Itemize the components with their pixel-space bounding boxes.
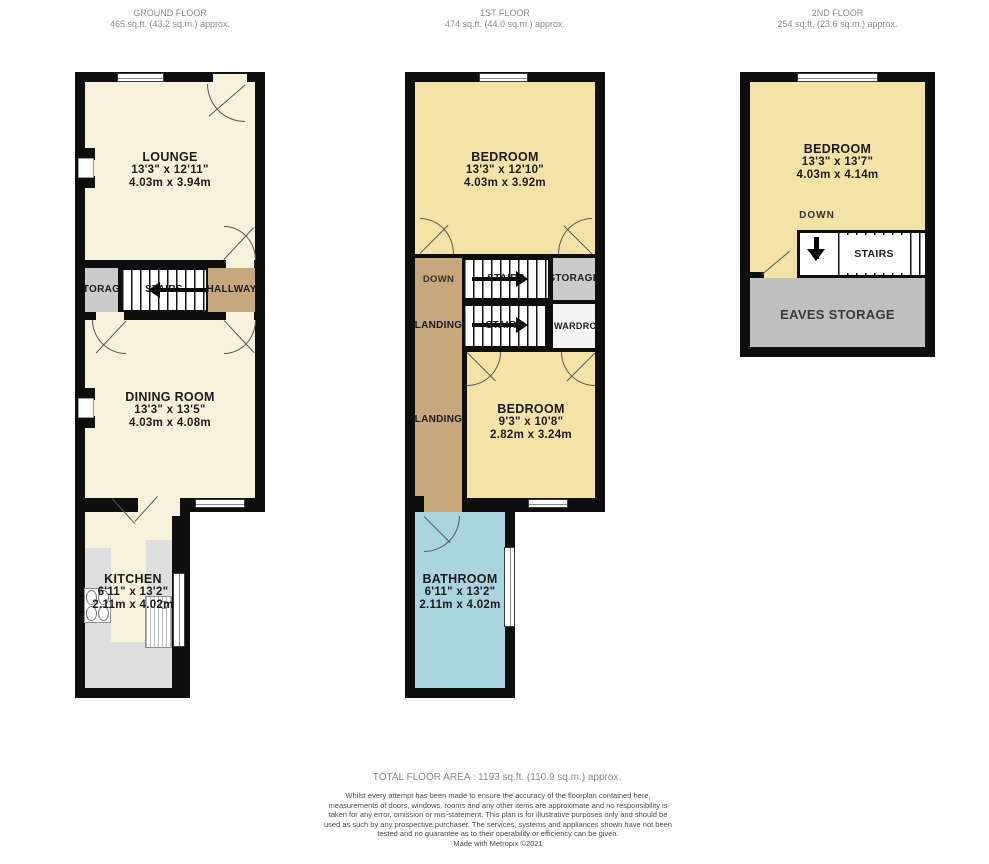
room-dims-imperial: 6'11" x 13'2" (59, 586, 207, 599)
wardrobe-label: WARDROBE (553, 304, 596, 348)
bathroom-label: BATHROOM 6'11" x 13'2" 2.11m x 4.02m (408, 572, 512, 612)
room-dims-metric: 2.82m x 3.24m (467, 429, 595, 442)
room-dims-imperial: 13'3" x 12'10" (415, 164, 595, 177)
bedroom1-label: BEDROOM 13'3" x 12'10" 4.03m x 3.92m (415, 150, 595, 190)
room-dims-imperial: 13'3" x 13'7" (750, 156, 925, 169)
hallway-dining-opening (226, 312, 254, 320)
total-floor-area: TOTAL FLOOR AREA : 1193 sq.ft. (110.9 sq… (248, 772, 746, 783)
room-name: BEDROOM (467, 402, 595, 416)
landing-label: LANDING (412, 304, 465, 348)
hallway-label: HALLWAY (208, 268, 255, 312)
ground-floor-area: 465 sq.ft. (43.2 sq.m.) approx. (75, 19, 265, 30)
disclaimer-text: Whilst every attempt has been made to en… (322, 791, 674, 839)
room-name: LOUNGE (85, 150, 255, 164)
room-dims-metric: 4.03m x 4.08m (85, 417, 255, 430)
stairs-label: STAIRS (462, 258, 550, 300)
room-dims-imperial: 9'3" x 10'8" (467, 416, 595, 429)
kitchen-label: KITCHEN 6'11" x 13'2" 2.11m x 4.02m (59, 572, 207, 612)
lounge-door-opening (213, 74, 247, 82)
room-dims-imperial: 6'11" x 13'2" (408, 586, 512, 599)
first-floor-header: 1ST FLOOR 474 sq.ft. (44.0 sq.m.) approx… (405, 8, 605, 30)
kitchen-counter-bottom (85, 642, 172, 688)
hallway-lounge-opening (226, 260, 254, 268)
room-name: BATHROOM (408, 572, 512, 586)
stairs-down-arrow-icon (814, 237, 819, 259)
first-floor-area: 474 sq.ft. (44.0 sq.m.) approx. (405, 19, 605, 30)
lounge-label: LOUNGE 13'3" x 12'11" 4.03m x 3.94m (85, 150, 255, 190)
window (797, 73, 878, 82)
down-label: DOWN (787, 210, 847, 221)
first-floor-title: 1ST FLOOR (405, 8, 605, 19)
window (479, 73, 528, 82)
window (528, 499, 568, 508)
room-dims-metric: 4.03m x 3.94m (85, 177, 255, 190)
dining-label: DINING ROOM 13'3" x 13'5" 4.03m x 4.08m (85, 390, 255, 430)
stairs-label: STAIRS (120, 268, 208, 312)
storage-label: STORAGE (553, 258, 595, 300)
bedroom-second-label: BEDROOM 13'3" x 13'7" 4.03m x 4.14m (750, 142, 925, 182)
storage-dining-opening (96, 312, 124, 320)
ground-floor-title: GROUND FLOOR (75, 8, 265, 19)
room-dims-imperial: 13'3" x 12'11" (85, 164, 255, 177)
room-dims-metric: 2.11m x 4.02m (408, 599, 512, 612)
room-dims-metric: 4.03m x 4.14m (750, 169, 925, 182)
room-name: DINING ROOM (85, 390, 255, 404)
window (117, 73, 164, 82)
ground-floor-header: GROUND FLOOR 465 sq.ft. (43.2 sq.m.) app… (75, 8, 265, 30)
landing-label: LANDING (412, 408, 465, 432)
window (195, 499, 245, 508)
room-name: KITCHEN (59, 572, 207, 586)
storage-label: STORAGE (85, 268, 118, 312)
second-floor-area: 254 sq.ft. (23.6 sq.m.) approx. (740, 19, 935, 30)
down-label: DOWN (415, 258, 462, 300)
room-dims-imperial: 13'3" x 13'5" (85, 404, 255, 417)
credit-text: Made with Metropix ©2021 (322, 839, 674, 849)
second-floor-header: 2ND FLOOR 254 sq.ft. (23.6 sq.m.) approx… (740, 8, 935, 30)
room-name: BEDROOM (415, 150, 595, 164)
room-dims-metric: 2.11m x 4.02m (59, 599, 207, 612)
eaves-storage-label: EAVES STORAGE (750, 288, 925, 340)
room-name: BEDROOM (750, 142, 925, 156)
floorplan-page: GROUND FLOOR 465 sq.ft. (43.2 sq.m.) app… (0, 0, 989, 864)
second-floor-title: 2ND FLOOR (740, 8, 935, 19)
stairs-label: STAIRS (839, 230, 909, 278)
bedroom2-label: BEDROOM 9'3" x 10'8" 2.82m x 3.24m (467, 402, 595, 442)
stairs-label: STAIRS (462, 304, 547, 348)
room-dims-metric: 4.03m x 3.92m (415, 177, 595, 190)
